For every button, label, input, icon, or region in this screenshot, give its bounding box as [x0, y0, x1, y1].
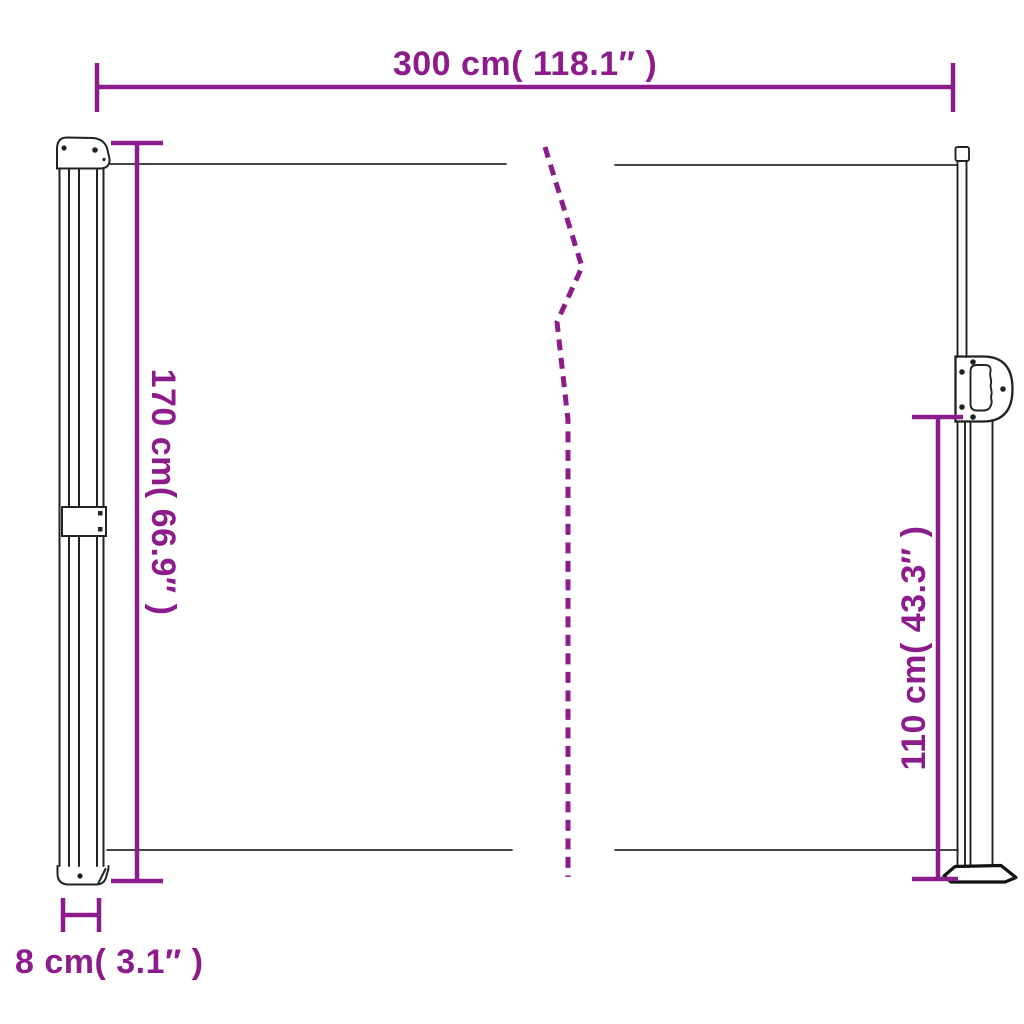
depth-dimension-line	[63, 898, 99, 932]
break-line	[545, 147, 582, 877]
dimension-lines	[63, 63, 963, 932]
cassette-top-cap	[57, 138, 110, 169]
right-post	[944, 147, 1016, 882]
cassette-bottom-cap	[58, 866, 109, 885]
width-dimension-label: 300 cm( 118.1″ )	[393, 45, 657, 83]
diagram-svg: 300 cm( 118.1″ ) 170 cm( 66.9″ ) 110 cm(…	[0, 0, 1024, 1024]
depth-dimension-label: 8 cm( 3.1″ )	[15, 943, 204, 981]
dimension-labels: 300 cm( 118.1″ ) 170 cm( 66.9″ ) 110 cm(…	[15, 45, 933, 981]
awning-structure	[57, 138, 1016, 885]
left-height-dimension-label: 170 cm( 66.9″ )	[144, 369, 182, 616]
right-height-dimension-label: 110 cm( 43.3″ )	[895, 526, 933, 771]
dimension-diagram: 300 cm( 118.1″ ) 170 cm( 66.9″ ) 110 cm(…	[0, 0, 1024, 1024]
post-top-cap	[956, 147, 970, 161]
left-cassette	[57, 138, 110, 885]
fabric-panel-edges	[107, 164, 958, 850]
handle-grip-cutout	[971, 365, 992, 411]
